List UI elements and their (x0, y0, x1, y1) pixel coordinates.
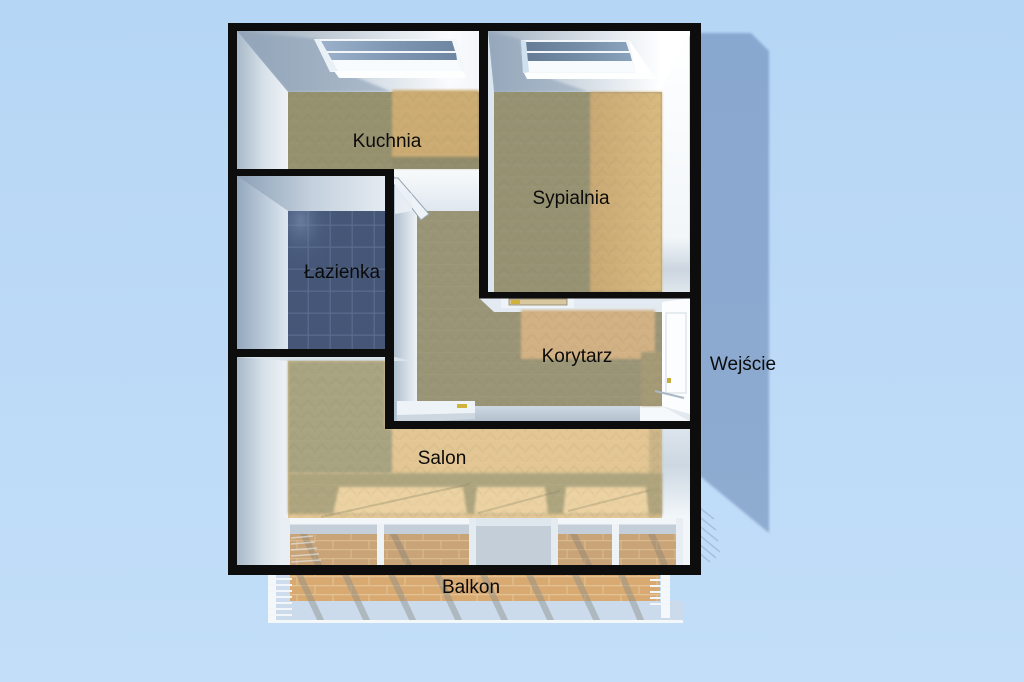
svg-text:Salon: Salon (418, 448, 467, 469)
svg-text:Balkon: Balkon (442, 577, 500, 598)
svg-text:Łazienka: Łazienka (304, 262, 380, 283)
svg-text:Sypialnia: Sypialnia (532, 188, 610, 209)
svg-text:Korytarz: Korytarz (542, 346, 613, 367)
svg-text:Wejście: Wejście (710, 354, 776, 375)
svg-text:Kuchnia: Kuchnia (353, 131, 422, 152)
